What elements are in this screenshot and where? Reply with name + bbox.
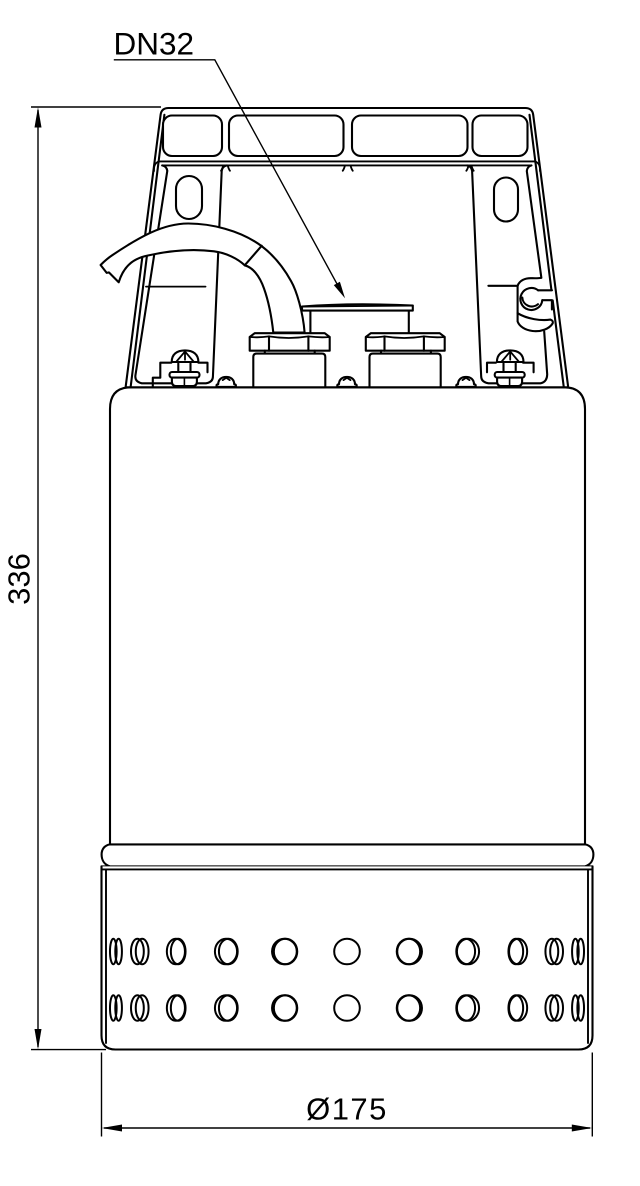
svg-text:Ø175: Ø175 [306, 1092, 388, 1127]
svg-text:DN32: DN32 [114, 26, 195, 62]
svg-text:336: 336 [1, 553, 36, 605]
